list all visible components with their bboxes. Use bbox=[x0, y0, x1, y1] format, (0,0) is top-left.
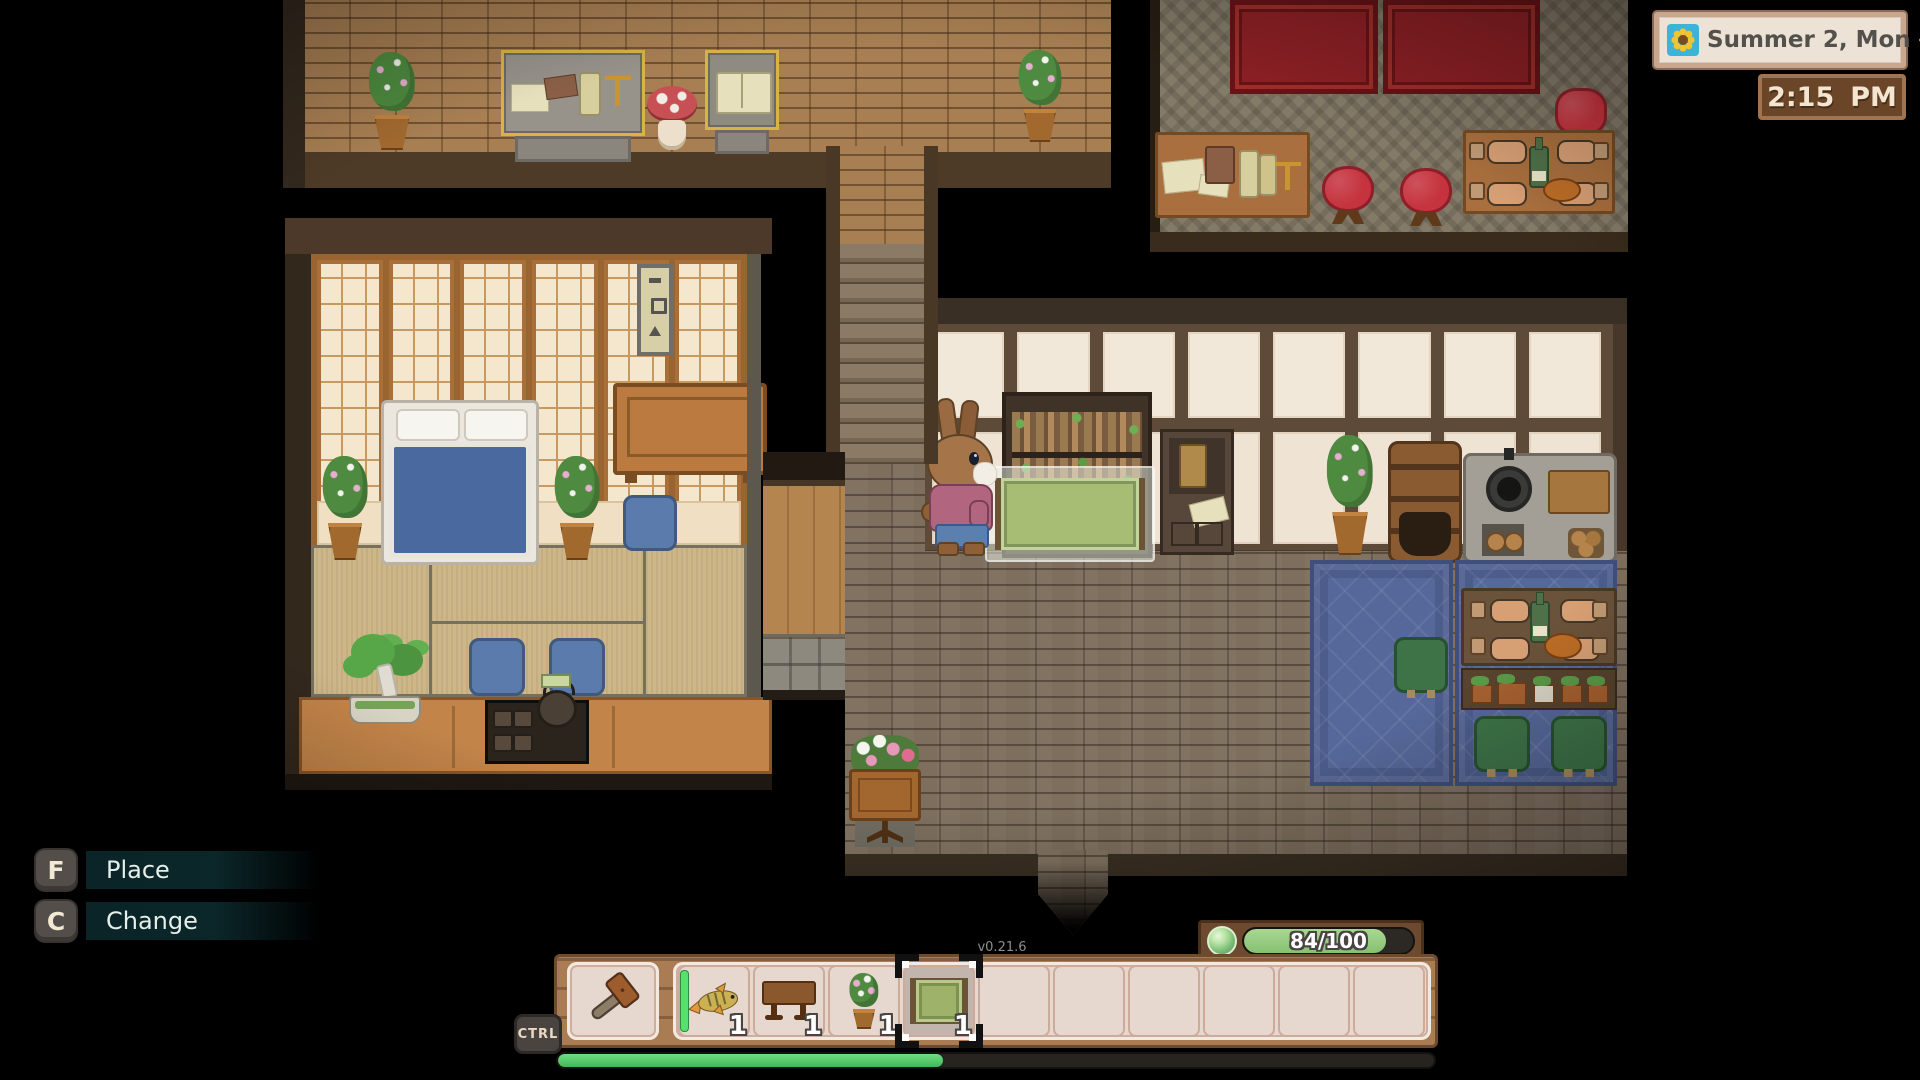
dining-table bbox=[1461, 588, 1617, 666]
hotbar-slot-4-selected[interactable]: 1 bbox=[903, 965, 975, 1037]
kitchen-counter bbox=[1463, 453, 1617, 563]
floor-edge bbox=[1150, 232, 1628, 252]
time-widget: 2:15 PM bbox=[1758, 74, 1906, 120]
selection-corner bbox=[959, 954, 983, 978]
staircase bbox=[826, 146, 938, 464]
stair-landing-floor bbox=[845, 448, 925, 558]
slot-quantity: 1 bbox=[729, 1011, 747, 1041]
selection-corner bbox=[895, 954, 919, 978]
wall-edge bbox=[285, 774, 772, 790]
doorway bbox=[1038, 850, 1108, 935]
red-stool bbox=[1322, 166, 1374, 228]
version-label: v0.21.6 bbox=[952, 940, 1052, 955]
hotbar-slot-1[interactable]: 1 bbox=[678, 965, 750, 1037]
flower-pot bbox=[319, 456, 371, 560]
hotbar-progress-bar bbox=[556, 1052, 1436, 1069]
keybind-row-change: C Change bbox=[36, 901, 321, 941]
green-stool bbox=[1474, 716, 1530, 772]
flower-pot bbox=[365, 52, 419, 150]
hotbar-slot-5[interactable] bbox=[978, 965, 1050, 1037]
tool-slot[interactable] bbox=[567, 962, 659, 1040]
dining-table bbox=[1463, 130, 1615, 214]
bedroom-room bbox=[285, 218, 772, 790]
flower-stand bbox=[849, 735, 921, 847]
time-value: 2:15 bbox=[1767, 82, 1834, 113]
hotbar-progress-fill bbox=[558, 1054, 943, 1067]
floor-cushion bbox=[623, 495, 677, 551]
study-desk bbox=[1155, 132, 1310, 218]
green-chair bbox=[1394, 637, 1448, 693]
stone-threshold bbox=[763, 634, 845, 690]
keybind-action-label: Place bbox=[86, 851, 321, 889]
time-meridiem: PM bbox=[1850, 82, 1897, 113]
wall-edge bbox=[845, 854, 1038, 876]
rabbit-muzzle bbox=[973, 462, 997, 486]
bonsai bbox=[335, 622, 435, 734]
bread bbox=[1544, 633, 1582, 659]
rabbit-foot bbox=[937, 542, 959, 556]
energy-orb-icon bbox=[1207, 926, 1237, 956]
hotbar-slot-8[interactable] bbox=[1203, 965, 1275, 1037]
hotbar-slot-7[interactable] bbox=[1128, 965, 1200, 1037]
date-widget: Summer 2, Mon bbox=[1654, 12, 1906, 68]
energy-bar: 84/100 bbox=[1242, 927, 1415, 955]
red-stool bbox=[1400, 168, 1452, 230]
wall-beam bbox=[845, 298, 1627, 324]
wood-floor bbox=[763, 486, 845, 634]
wall-edge bbox=[1108, 854, 1627, 876]
keybind-action-label: Change bbox=[86, 902, 321, 940]
red-carpet bbox=[1383, 0, 1540, 94]
museum-room bbox=[283, 0, 1111, 196]
dresser bbox=[613, 383, 767, 475]
mushroom-lamp bbox=[647, 86, 699, 152]
date-text: Summer 2, Mon bbox=[1707, 27, 1911, 53]
display-table bbox=[501, 50, 645, 162]
floor-edge bbox=[305, 152, 1111, 188]
hotbar-slot-2[interactable]: 1 bbox=[753, 965, 825, 1037]
hanging-scroll bbox=[637, 264, 673, 356]
ctrl-key-badge: CTRL bbox=[514, 1014, 562, 1054]
red-pouf bbox=[1555, 88, 1607, 136]
book-display bbox=[705, 50, 779, 154]
wall-beam bbox=[285, 218, 772, 254]
flower-pot bbox=[551, 456, 603, 560]
plant-shelf bbox=[1461, 668, 1617, 710]
bed bbox=[381, 400, 539, 565]
hotbar-slot-10[interactable] bbox=[1353, 965, 1425, 1037]
potted-plant-icon bbox=[847, 973, 881, 1029]
hotbar-tray: 1 1 1 bbox=[673, 962, 1431, 1040]
sunflower-icon bbox=[1667, 24, 1699, 56]
hotbar-panel: 1 1 1 bbox=[554, 954, 1438, 1048]
selection-corner bbox=[895, 1024, 919, 1048]
hallway-passage bbox=[763, 452, 845, 700]
barrel bbox=[1388, 441, 1462, 563]
tea-set bbox=[485, 686, 589, 768]
rabbit-foot bbox=[963, 542, 985, 556]
selection-corner bbox=[959, 1024, 983, 1048]
hammer-icon bbox=[585, 971, 641, 1031]
wine-bottle bbox=[1530, 601, 1550, 643]
keybind-row-place: F Place bbox=[36, 850, 321, 890]
door-lintel bbox=[763, 452, 845, 486]
hotbar-slot-6[interactable] bbox=[1053, 965, 1125, 1037]
slot-quantity: 1 bbox=[804, 1011, 822, 1041]
freshness-bar bbox=[681, 971, 688, 1031]
green-stool bbox=[1551, 716, 1607, 772]
hotbar-slot-3[interactable]: 1 bbox=[828, 965, 900, 1037]
side-cabinet bbox=[1160, 429, 1234, 555]
flower-pot bbox=[1015, 50, 1065, 142]
flower-plant bbox=[1323, 435, 1377, 555]
energy-label: 84/100 bbox=[1244, 929, 1413, 953]
wall-edge bbox=[747, 254, 761, 774]
key-f-badge: F bbox=[36, 850, 76, 890]
wall-edge bbox=[283, 0, 305, 188]
red-carpet bbox=[1230, 0, 1378, 94]
placement-preview-rug[interactable] bbox=[985, 466, 1155, 562]
lounge-room bbox=[1150, 0, 1628, 252]
key-c-badge: C bbox=[36, 901, 76, 941]
hotbar-slot-9[interactable] bbox=[1278, 965, 1350, 1037]
bread bbox=[1543, 178, 1581, 202]
game-viewport: Summer 2, Mon 2:15 PM F Place C Change 8… bbox=[0, 0, 1920, 1080]
main-room bbox=[845, 298, 1627, 878]
